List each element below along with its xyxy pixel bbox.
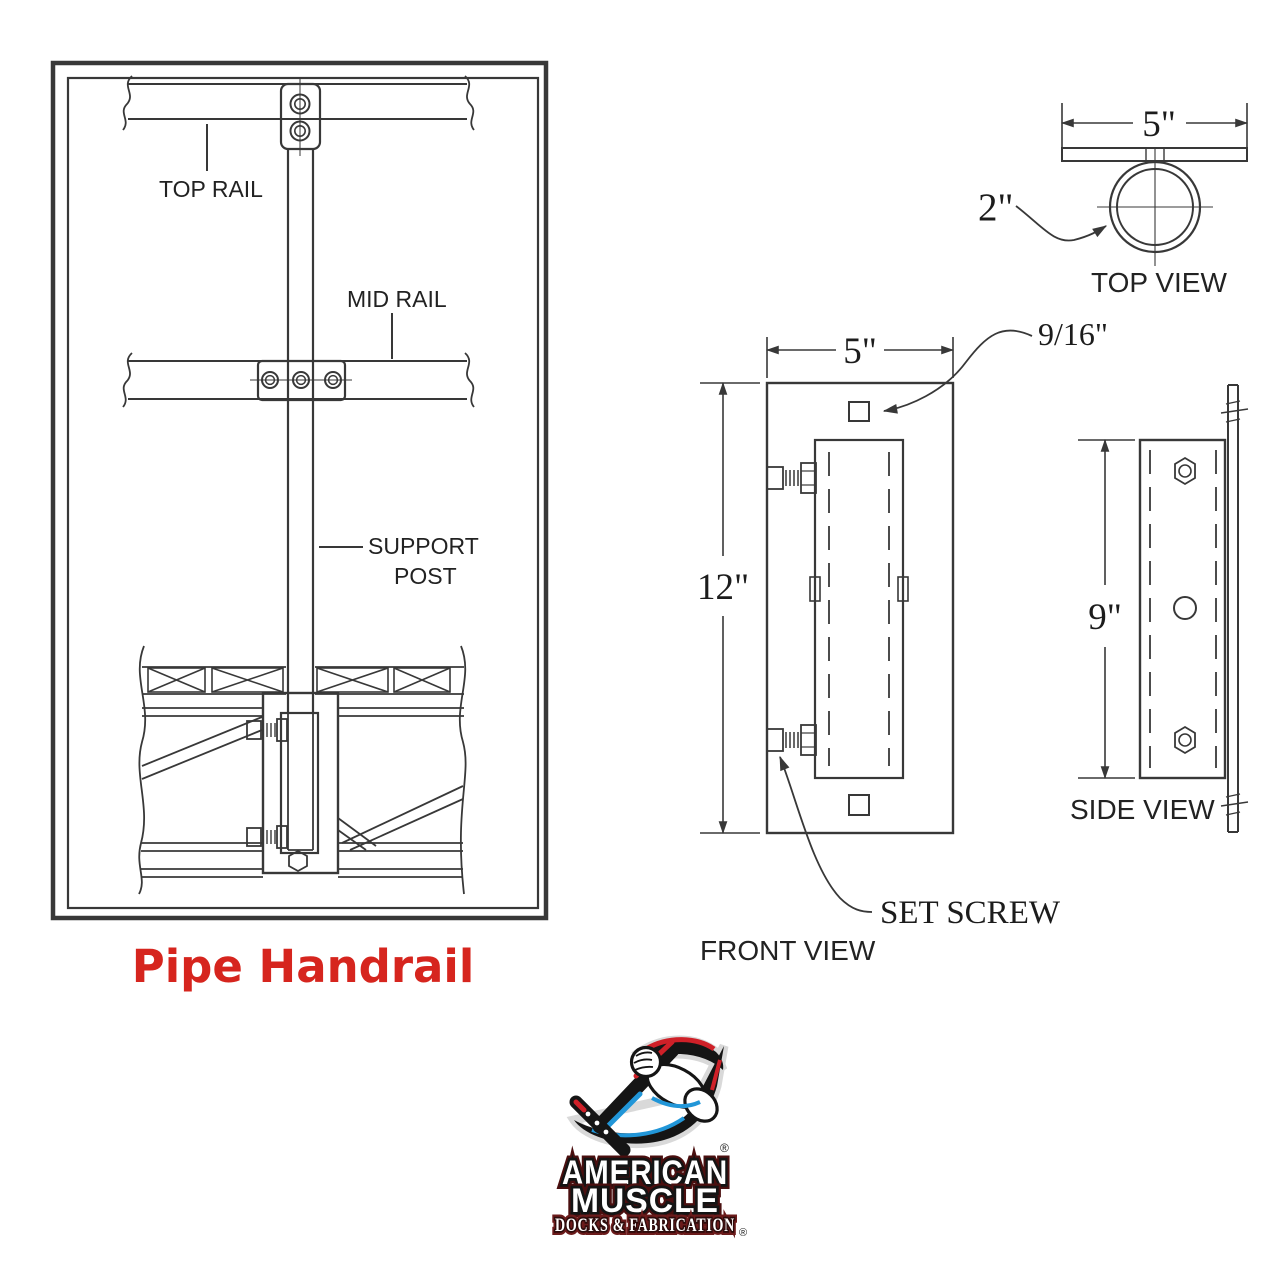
side-view: 9" SIDE VIEW <box>1070 385 1248 832</box>
front-view-top-hole <box>849 402 869 421</box>
top-view-width-dim-text: 5" <box>1142 104 1176 145</box>
side-view-hex-nut-top <box>1175 458 1195 484</box>
truss-break-right <box>460 646 466 894</box>
pipe-handrail-technical-drawing: TOP RAIL MID RAIL SUPPORT POST <box>0 0 1288 1288</box>
front-view: 5" 12" <box>697 316 1108 966</box>
set-screw-label: SET SCREW <box>880 895 1061 931</box>
hole-dim-text: 9/16" <box>1038 316 1108 352</box>
frame-outer <box>53 63 546 918</box>
front-view-label: FRONT VIEW <box>700 935 876 966</box>
front-view-width-dim-text: 5" <box>843 331 877 372</box>
support-post <box>288 148 313 712</box>
drawing-sheet: TOP RAIL MID RAIL SUPPORT POST <box>0 0 1288 1288</box>
brand-logo: ® AMERICAN AMERICAN MUSCLE MUSCLE DOCKS … <box>555 1040 747 1239</box>
registered-mark-wordmark: ® <box>739 1227 747 1239</box>
top-view-pipe-leader <box>1016 206 1106 241</box>
truss-break-left <box>139 646 145 894</box>
mounting-bracket <box>247 693 338 873</box>
top-view: 5" 2" TOP VIEW <box>978 103 1247 298</box>
side-view-height-dim-text: 9" <box>1088 597 1122 638</box>
registered-mark-emblem: ® <box>720 1141 729 1155</box>
support-post-label-1: SUPPORT <box>368 533 479 559</box>
top-view-label: TOP VIEW <box>1091 267 1227 298</box>
set-screw-leader <box>780 757 872 912</box>
left-panel-elevation: TOP RAIL MID RAIL SUPPORT POST <box>53 63 546 993</box>
side-view-channel <box>1140 440 1225 778</box>
x-brace-boxes <box>148 668 450 692</box>
support-post-label-2: POST <box>394 563 457 589</box>
cross-fitting <box>250 361 352 400</box>
top-rail-label: TOP RAIL <box>159 176 263 202</box>
side-view-hex-nut-bottom <box>1175 727 1195 753</box>
logo-text-docks-fabrication: DOCKS & FABRICATION <box>555 1215 735 1236</box>
frame-inner <box>68 78 538 908</box>
tee-fitting <box>281 77 320 156</box>
front-view-plate <box>767 383 953 833</box>
front-set-screw-upper <box>767 463 816 493</box>
anchor-arm-emblem: ® <box>574 1040 729 1155</box>
drawing-caption: Pipe Handrail <box>132 940 475 993</box>
top-view-pipe-dim-text: 2" <box>978 186 1013 229</box>
front-view-height-dim-text: 12" <box>697 567 749 608</box>
dock-truss <box>139 646 466 894</box>
hole-leader <box>884 330 1032 411</box>
side-view-center-hole <box>1174 597 1196 619</box>
side-view-label: SIDE VIEW <box>1070 794 1215 825</box>
front-set-screw-lower <box>767 725 816 755</box>
front-view-bottom-hole <box>849 795 869 815</box>
mid-rail-label: MID RAIL <box>347 286 447 312</box>
